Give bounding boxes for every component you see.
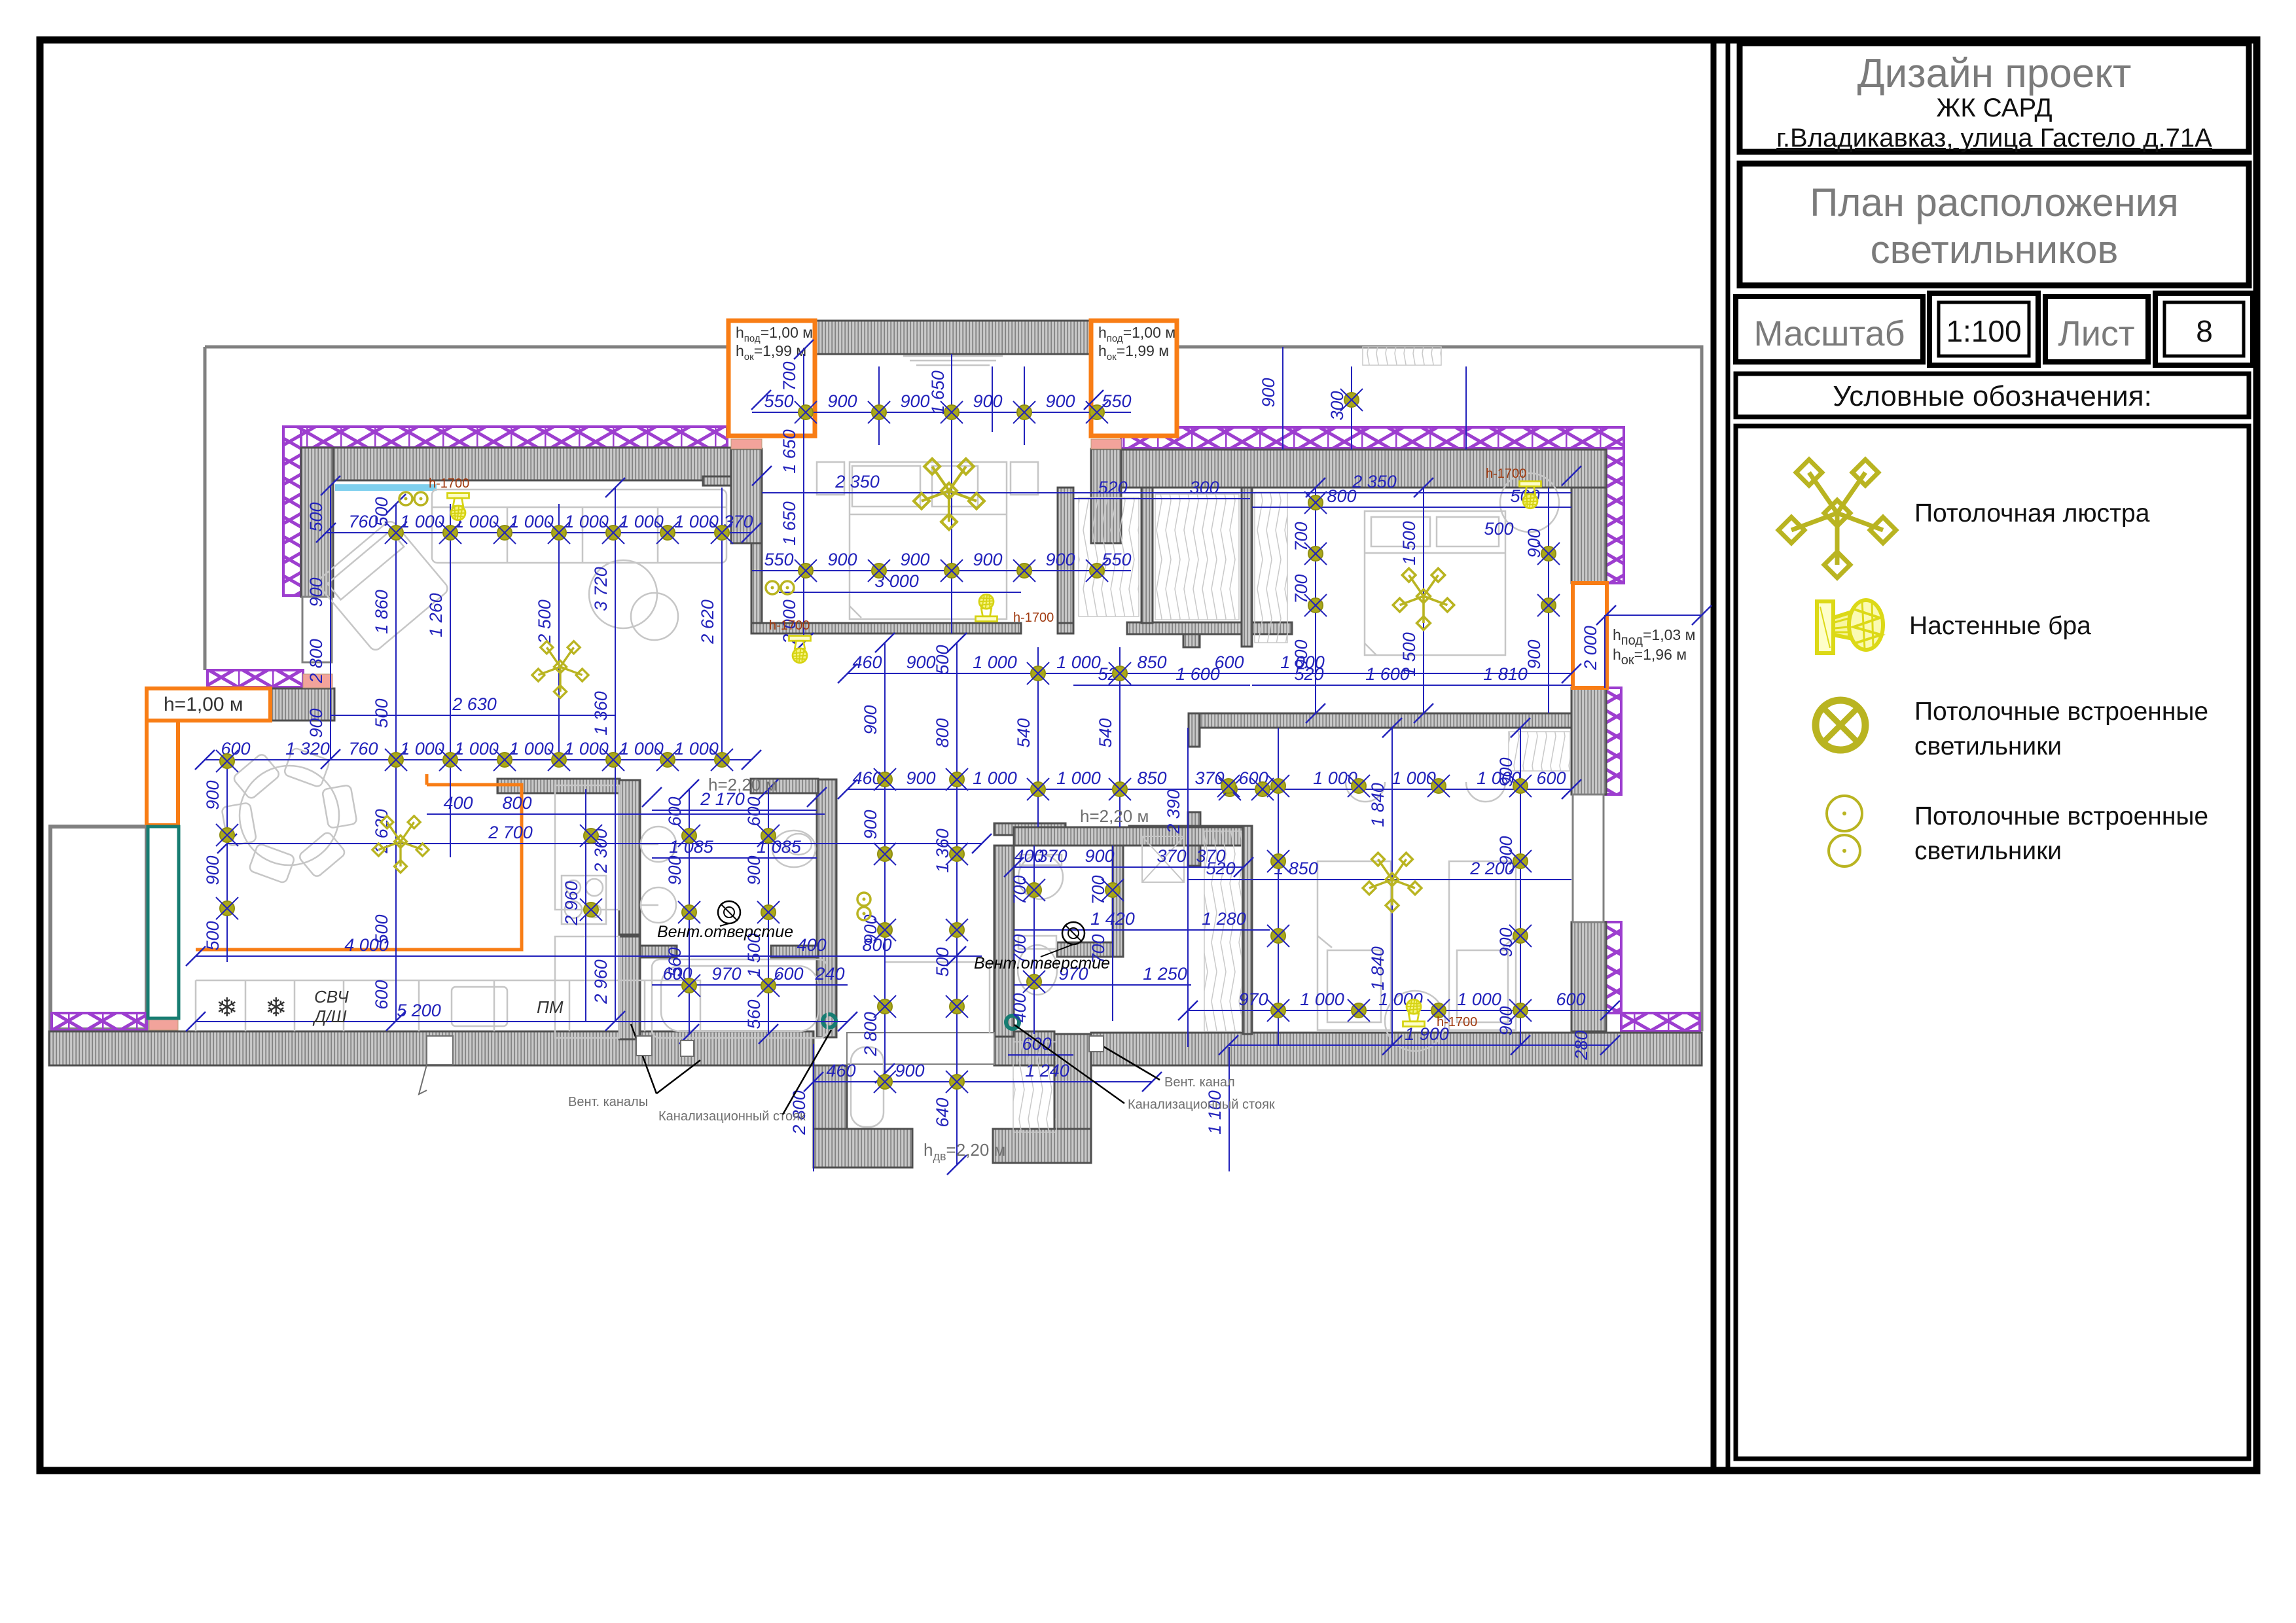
svg-text:❄: ❄	[216, 993, 238, 1022]
svg-text:600: 600	[1022, 1034, 1051, 1054]
svg-text:1 000: 1 000	[674, 739, 719, 758]
svg-text:2 960: 2 960	[562, 881, 581, 926]
svg-text:1:100: 1:100	[1946, 314, 2021, 348]
svg-text:900: 900	[203, 780, 223, 810]
svg-text:900: 900	[1291, 639, 1311, 669]
svg-text:300: 300	[1327, 391, 1347, 420]
svg-text:280: 280	[1571, 1030, 1591, 1060]
svg-text:800: 800	[1327, 486, 1356, 506]
svg-text:Дизайн проект: Дизайн проект	[1857, 51, 2132, 96]
svg-text:h-1700: h-1700	[429, 476, 469, 491]
svg-text:600: 600	[1536, 768, 1566, 788]
svg-text:1 000: 1 000	[973, 652, 1017, 672]
svg-text:1 000: 1 000	[509, 739, 554, 758]
svg-text:550: 550	[764, 550, 793, 569]
svg-text:400: 400	[797, 935, 826, 955]
svg-text:1 600: 1 600	[1175, 664, 1220, 684]
svg-text:1 840: 1 840	[1368, 946, 1388, 991]
svg-text:1 360: 1 360	[933, 829, 952, 873]
svg-text:2 630: 2 630	[452, 694, 497, 714]
svg-text:560: 560	[744, 999, 764, 1029]
svg-text:600: 600	[744, 796, 764, 826]
svg-text:Потолочные встроенные: Потолочные встроенные	[1914, 802, 2208, 830]
svg-text:2 800: 2 800	[306, 639, 326, 684]
svg-text:1 000: 1 000	[509, 512, 554, 531]
svg-text:900: 900	[906, 768, 935, 788]
svg-text:970: 970	[1238, 990, 1268, 1009]
svg-text:2 620: 2 620	[698, 599, 717, 645]
svg-text:1 000: 1 000	[1056, 768, 1101, 788]
svg-text:1 240: 1 240	[1025, 1061, 1069, 1080]
svg-text:900: 900	[827, 550, 857, 569]
svg-text:700: 700	[780, 361, 799, 391]
svg-text:900: 900	[1085, 846, 1114, 866]
svg-text:5 200: 5 200	[397, 1001, 441, 1020]
svg-text:500: 500	[372, 914, 391, 944]
svg-text:640: 640	[933, 1097, 952, 1127]
svg-text:1 000: 1 000	[1391, 768, 1436, 788]
svg-text:2 960: 2 960	[591, 959, 611, 1005]
svg-text:460: 460	[852, 652, 882, 672]
svg-text:900: 900	[1045, 550, 1075, 569]
svg-text:8: 8	[2196, 314, 2213, 348]
svg-text:3 720: 3 720	[591, 567, 611, 611]
svg-text:h-1700: h-1700	[769, 618, 810, 633]
svg-text:500: 500	[306, 502, 326, 531]
svg-text:550: 550	[1102, 550, 1131, 569]
svg-text:400: 400	[443, 793, 473, 813]
svg-text:ПМ: ПМ	[537, 997, 564, 1017]
svg-text:1 260: 1 260	[426, 593, 446, 637]
svg-text:900: 900	[1496, 757, 1516, 787]
svg-text:1 500: 1 500	[1399, 632, 1419, 677]
svg-text:900: 900	[1524, 639, 1544, 669]
svg-text:900: 900	[203, 855, 223, 885]
svg-text:Вент.отверстие: Вент.отверстие	[974, 954, 1110, 972]
svg-text:500: 500	[203, 921, 223, 950]
svg-text:Условные обозначения:: Условные обозначения:	[1833, 380, 2152, 412]
svg-text:1 000: 1 000	[564, 512, 609, 531]
svg-text:560: 560	[665, 947, 685, 976]
svg-text:светильники: светильники	[1914, 732, 2062, 760]
svg-text:1 500: 1 500	[1399, 521, 1419, 565]
svg-text:540: 540	[1014, 718, 1033, 747]
svg-text:h-1700: h-1700	[1486, 467, 1526, 481]
svg-text:370: 370	[1037, 846, 1067, 866]
svg-text:1 650: 1 650	[928, 370, 948, 415]
svg-text:2 500: 2 500	[535, 599, 554, 645]
svg-text:600: 600	[774, 964, 803, 984]
svg-text:500: 500	[372, 698, 391, 728]
svg-text:2 350: 2 350	[1352, 472, 1397, 491]
svg-text:900: 900	[973, 391, 1002, 411]
svg-text:1 000: 1 000	[674, 512, 719, 531]
svg-text:1 000: 1 000	[1457, 990, 1501, 1009]
svg-text:Вент. каналы: Вент. каналы	[568, 1095, 648, 1109]
svg-text:h-1700: h-1700	[1013, 611, 1054, 625]
svg-text:Вент.отверстие: Вент.отверстие	[657, 923, 793, 941]
svg-text:Масштаб: Масштаб	[1753, 314, 1905, 353]
svg-text:h-1700: h-1700	[1437, 1015, 1477, 1029]
svg-text:1 280: 1 280	[1202, 909, 1246, 929]
svg-text:Потолочная люстра: Потолочная люстра	[1914, 499, 2150, 527]
svg-text:600: 600	[372, 980, 391, 1009]
svg-text:1 360: 1 360	[591, 691, 611, 736]
svg-text:Вент. канал: Вент. канал	[1164, 1075, 1235, 1090]
svg-text:600: 600	[665, 796, 685, 826]
svg-text:1 000: 1 000	[1300, 990, 1344, 1009]
svg-text:1 000: 1 000	[564, 739, 609, 758]
svg-text:900: 900	[861, 810, 880, 839]
svg-text:1 810: 1 810	[1483, 664, 1528, 684]
svg-text:❄: ❄	[265, 993, 287, 1022]
svg-text:1 860: 1 860	[372, 590, 391, 634]
svg-text:900: 900	[900, 550, 929, 569]
svg-text:500: 500	[1484, 519, 1513, 539]
svg-text:2 800: 2 800	[861, 1012, 880, 1057]
svg-text:План расположения: План расположения	[1810, 181, 2179, 224]
svg-text:900: 900	[895, 1061, 924, 1080]
svg-text:Канализационный стояк: Канализационный стояк	[658, 1109, 806, 1124]
svg-text:800: 800	[933, 718, 952, 747]
svg-text:h=2,20 м: h=2,20 м	[1080, 806, 1149, 826]
svg-text:240: 240	[814, 964, 844, 984]
svg-text:2 700: 2 700	[488, 823, 533, 842]
svg-text:600: 600	[1556, 990, 1585, 1009]
svg-text:800: 800	[502, 793, 531, 813]
svg-text:550: 550	[1102, 391, 1131, 411]
svg-text:900: 900	[1496, 927, 1516, 957]
svg-text:900: 900	[744, 855, 764, 885]
svg-text:850: 850	[1137, 652, 1166, 672]
svg-text:2 390: 2 390	[1164, 789, 1183, 834]
svg-text:1 320: 1 320	[285, 739, 330, 758]
svg-text:900: 900	[906, 652, 935, 672]
svg-text:h=2,20 м: h=2,20 м	[708, 775, 777, 794]
svg-text:400: 400	[1010, 993, 1030, 1022]
svg-text:900: 900	[306, 708, 326, 738]
svg-text:900: 900	[827, 391, 857, 411]
svg-text:Настенные бра: Настенные бра	[1909, 612, 2091, 640]
svg-text:900: 900	[1259, 378, 1278, 407]
svg-text:900: 900	[973, 550, 1002, 569]
svg-text:СВЧ: СВЧ	[314, 987, 349, 1007]
svg-text:520: 520	[1098, 478, 1127, 497]
svg-text:300: 300	[1189, 478, 1219, 497]
svg-text:700: 700	[1291, 574, 1311, 603]
svg-text:540: 540	[1096, 718, 1115, 747]
svg-text:900: 900	[1045, 391, 1075, 411]
svg-text:760: 760	[348, 739, 378, 758]
svg-text:550: 550	[764, 391, 793, 411]
svg-text:1 000: 1 000	[1056, 652, 1101, 672]
svg-text:900: 900	[900, 391, 929, 411]
svg-text:2 350: 2 350	[834, 472, 880, 491]
svg-text:Д/Ш: Д/Ш	[312, 1007, 347, 1026]
svg-text:Лист: Лист	[2058, 314, 2134, 353]
svg-text:Потолочные встроенные: Потолочные встроенные	[1914, 698, 2208, 726]
svg-text:h=1,00 м: h=1,00 м	[164, 694, 243, 715]
svg-text:900: 900	[306, 577, 326, 607]
svg-text:1 250: 1 250	[1143, 964, 1187, 984]
svg-text:1 650: 1 650	[780, 501, 799, 546]
svg-text:1 000: 1 000	[973, 768, 1017, 788]
svg-text:г.Владикавказ, улица Гастело д: г.Владикавказ, улица Гастело д.71А	[1776, 124, 2212, 152]
svg-text:460: 460	[826, 1061, 855, 1080]
svg-text:900: 900	[665, 855, 685, 885]
svg-text:ЖК САРД: ЖК САРД	[1936, 94, 2052, 122]
svg-text:светильники: светильники	[1914, 837, 2062, 865]
svg-text:900: 900	[861, 705, 880, 734]
svg-text:1 650: 1 650	[780, 429, 799, 474]
svg-text:370: 370	[1157, 846, 1186, 866]
svg-text:850: 850	[1137, 768, 1166, 788]
svg-text:2 000: 2 000	[1581, 626, 1600, 671]
svg-text:970: 970	[711, 964, 741, 984]
svg-text:1 840: 1 840	[1368, 783, 1388, 827]
svg-text:Канализационный стояк: Канализационный стояк	[1128, 1097, 1275, 1112]
svg-text:520: 520	[1206, 859, 1235, 878]
svg-text:светильников: светильников	[1871, 228, 2119, 272]
